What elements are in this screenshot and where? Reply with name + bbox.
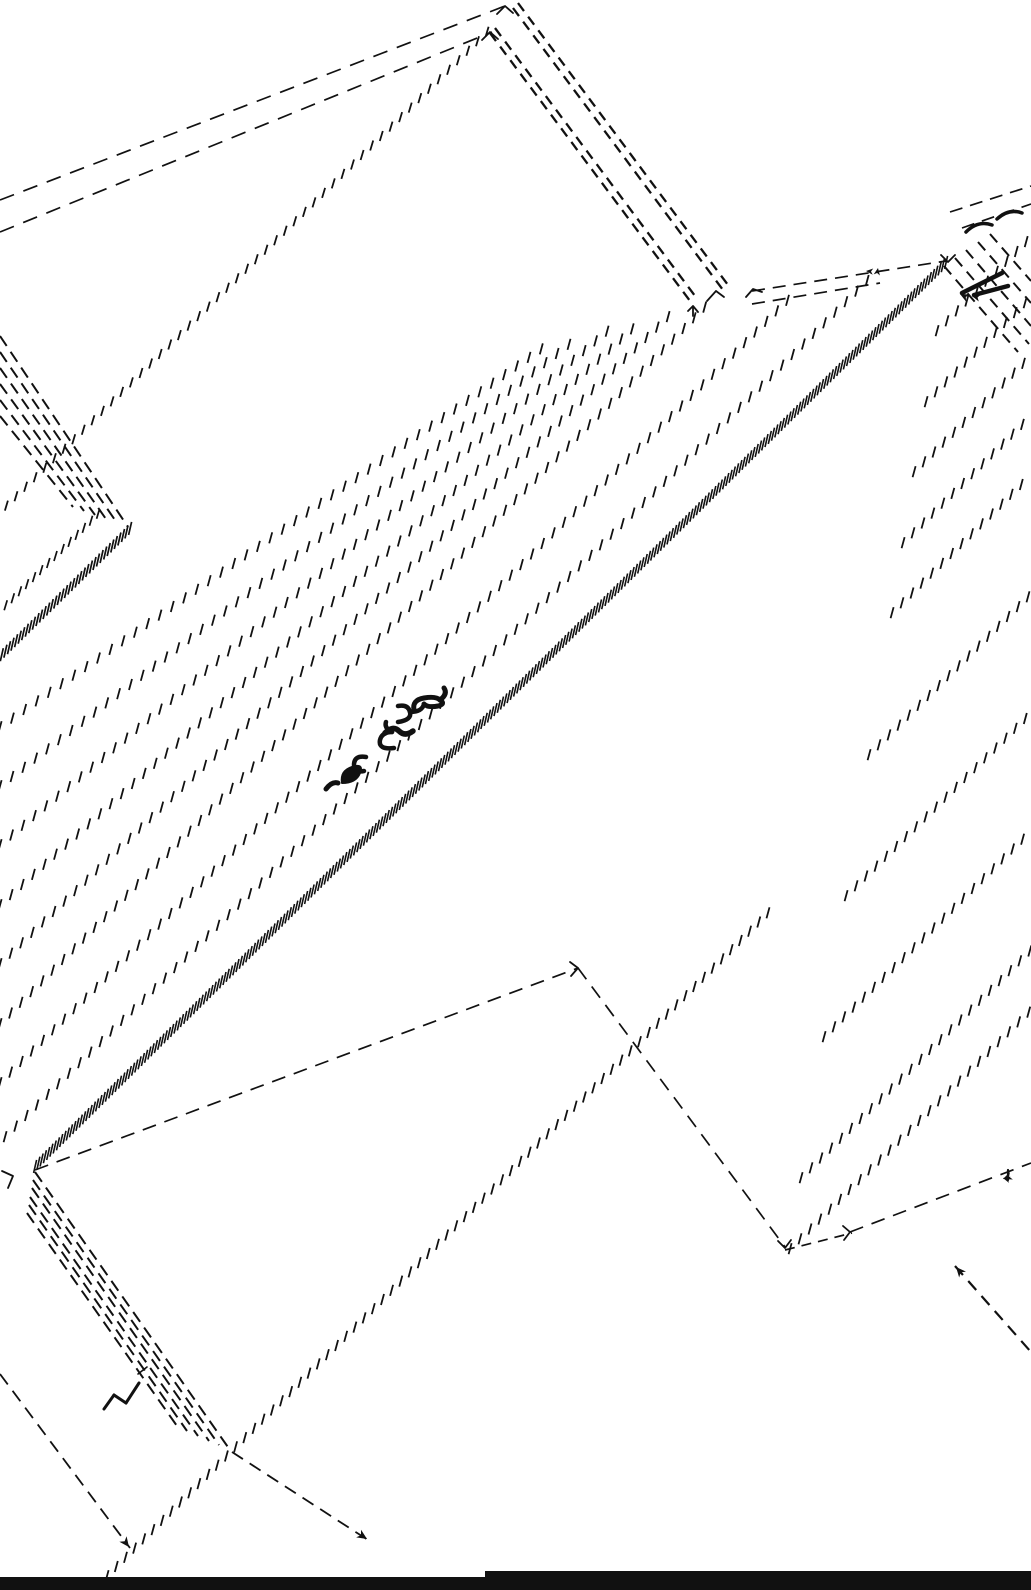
- dashed-edge: [32, 1188, 209, 1441]
- corner-mark: [843, 1226, 850, 1240]
- handwritten-inscription: [440, 688, 445, 700]
- corner-mark: [497, 6, 513, 14]
- dashed-edge: [955, 1266, 1031, 1352]
- hatch-tick-row: [936, 236, 1028, 336]
- handwritten-inscription: [354, 757, 366, 772]
- hatch-tick-row: [0, 326, 609, 851]
- hatch-tick-row: [0, 343, 543, 732]
- hatch-tick-row: [106, 907, 770, 1581]
- dashed-edge: [490, 33, 693, 305]
- corner-mark: [2, 1171, 13, 1188]
- dashed-edge: [944, 266, 1018, 352]
- dashed-edge: [27, 1213, 177, 1426]
- dashed-edge: [33, 1180, 219, 1445]
- dashed-edge: [962, 204, 1031, 228]
- axonometric-line-drawing: [0, 0, 1031, 1590]
- hatch-tick-row: [845, 713, 1027, 901]
- bottom-black-bar: [0, 1577, 1031, 1590]
- dashed-edge: [495, 28, 698, 300]
- handwritten-inscription: [398, 706, 410, 722]
- arrowhead-icon: [953, 1264, 966, 1277]
- corner-mark: [104, 1395, 114, 1409]
- dashed-edge: [518, 3, 728, 285]
- dashed-edge: [35, 1172, 230, 1450]
- corner-mark: [707, 291, 724, 301]
- hatch-tick-row: [5, 27, 489, 511]
- bottom-black-bar: [485, 1571, 1031, 1578]
- hatch-tick-row: [34, 256, 948, 1173]
- dashed-edge: [0, 336, 128, 527]
- dashed-edge: [578, 968, 785, 1247]
- dashed-edge: [29, 1205, 187, 1431]
- dashed-edge: [785, 1233, 852, 1250]
- dashed-edge: [0, 384, 95, 515]
- handwritten-inscription: [342, 766, 361, 783]
- corner-mark: [114, 1395, 126, 1403]
- hatch-tick-row: [0, 323, 634, 910]
- dashed-edge: [0, 32, 492, 232]
- hatch-tick-row: [789, 1007, 1031, 1255]
- corner-mark: [778, 1240, 791, 1248]
- hatch-tick-row: [925, 297, 1027, 407]
- drawing-canvas: [0, 0, 1031, 1590]
- hatch-tick-row: [913, 358, 1025, 477]
- dashed-edge: [232, 1452, 368, 1540]
- dashed-edge: [850, 1163, 1031, 1232]
- handwritten-inscription: [326, 783, 338, 789]
- hatch-tick-row: [823, 834, 1025, 1042]
- hatch-tick-row: [891, 479, 1023, 618]
- dashed-edge: [513, 8, 723, 290]
- dashed-edge: [0, 6, 505, 200]
- hatch-tick-row: [4, 509, 99, 611]
- dashed-edge: [0, 416, 73, 507]
- dashed-edge: [752, 283, 880, 304]
- dashed-edge: [35, 968, 578, 1170]
- corner-mark: [997, 211, 1022, 219]
- arrowhead-icon: [119, 1536, 132, 1549]
- hatch-tick-row: [0, 302, 706, 1030]
- dashed-edge: [950, 186, 1031, 212]
- corner-mark: [126, 1383, 139, 1403]
- arrowhead-icon: [356, 1530, 369, 1543]
- dashed-edge: [752, 261, 946, 291]
- corner-mark: [688, 306, 698, 316]
- hatch-tick-row: [902, 419, 1024, 548]
- dashed-edge: [30, 1197, 198, 1436]
- hatch-tick-row: [800, 946, 1031, 1184]
